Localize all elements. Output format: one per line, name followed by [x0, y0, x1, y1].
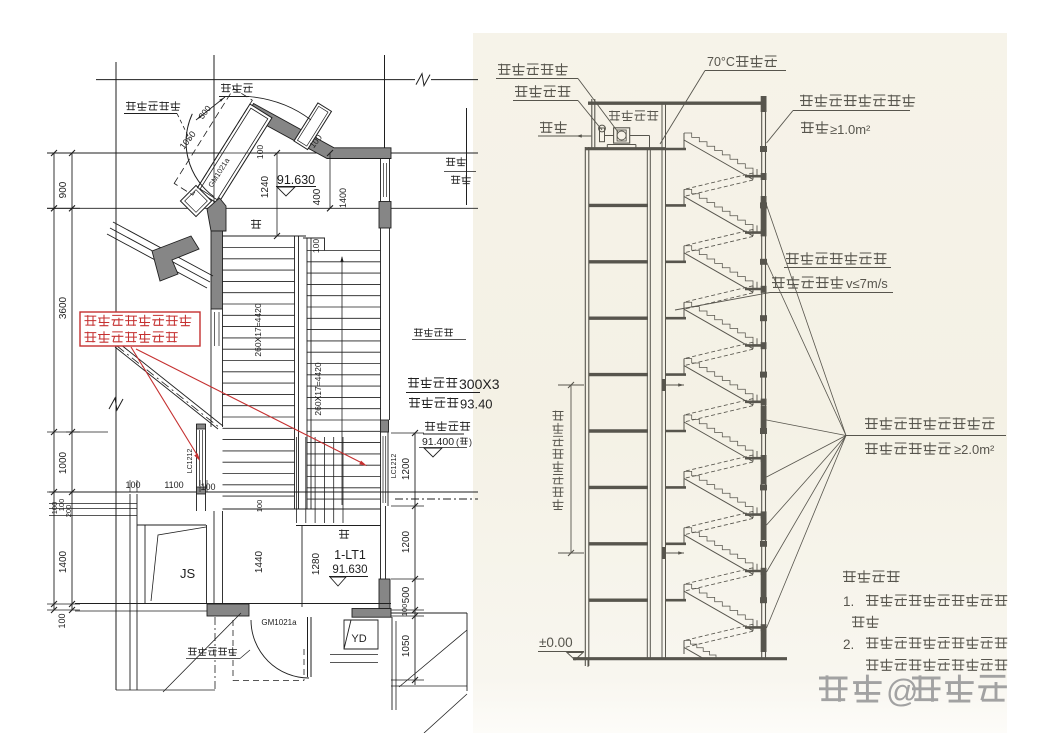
svg-text:1400: 1400 — [58, 550, 69, 573]
svg-text:3600: 3600 — [58, 296, 69, 319]
svg-text:1.: 1. — [843, 594, 854, 609]
svg-text:1100: 1100 — [164, 480, 183, 490]
svg-text:≥1.0m²: ≥1.0m² — [830, 122, 871, 137]
svg-text:100: 100 — [200, 482, 215, 492]
svg-text:70°C: 70°C — [707, 55, 735, 69]
svg-text:100: 100 — [255, 145, 265, 159]
svg-text:): ) — [469, 437, 472, 447]
svg-text:2.: 2. — [843, 637, 854, 652]
svg-text:100: 100 — [400, 604, 409, 617]
svg-text:±0.00: ±0.00 — [539, 635, 573, 650]
svg-text:JS: JS — [180, 566, 196, 581]
svg-text:91.630: 91.630 — [332, 564, 367, 576]
svg-text:900: 900 — [58, 181, 69, 198]
svg-text:1050: 1050 — [401, 634, 412, 657]
svg-text:1400: 1400 — [338, 188, 348, 208]
svg-text:GM1021a: GM1021a — [261, 618, 297, 627]
svg-text:260X17=4420: 260X17=4420 — [313, 362, 323, 415]
svg-text:100: 100 — [57, 613, 67, 628]
svg-text:(: ( — [456, 437, 459, 447]
svg-text:1280: 1280 — [311, 552, 322, 575]
svg-text:91.400: 91.400 — [422, 436, 454, 448]
svg-text:100: 100 — [311, 239, 321, 253]
svg-text:100: 100 — [125, 480, 140, 490]
svg-text:LC1212: LC1212 — [187, 449, 194, 474]
svg-text:100: 100 — [255, 500, 264, 513]
svg-text:LC1212: LC1212 — [391, 454, 398, 479]
svg-text:91.630: 91.630 — [277, 173, 315, 187]
svg-text:500: 500 — [401, 586, 412, 603]
svg-text:300X3: 300X3 — [459, 376, 500, 392]
svg-text:v≤7m/s: v≤7m/s — [846, 276, 888, 291]
svg-text:1200: 1200 — [401, 457, 412, 480]
svg-text:1440: 1440 — [254, 550, 265, 573]
svg-text:1200: 1200 — [401, 530, 412, 553]
svg-text:1-LT1: 1-LT1 — [334, 548, 366, 562]
svg-text:260X17=4420: 260X17=4420 — [253, 303, 263, 356]
svg-text:YD: YD — [351, 633, 366, 645]
svg-text:1240: 1240 — [260, 175, 271, 198]
svg-text:1000: 1000 — [58, 451, 69, 474]
svg-text:93.40: 93.40 — [460, 397, 493, 412]
svg-text:400: 400 — [312, 188, 323, 205]
svg-text:≥2.0m²: ≥2.0m² — [954, 442, 995, 457]
